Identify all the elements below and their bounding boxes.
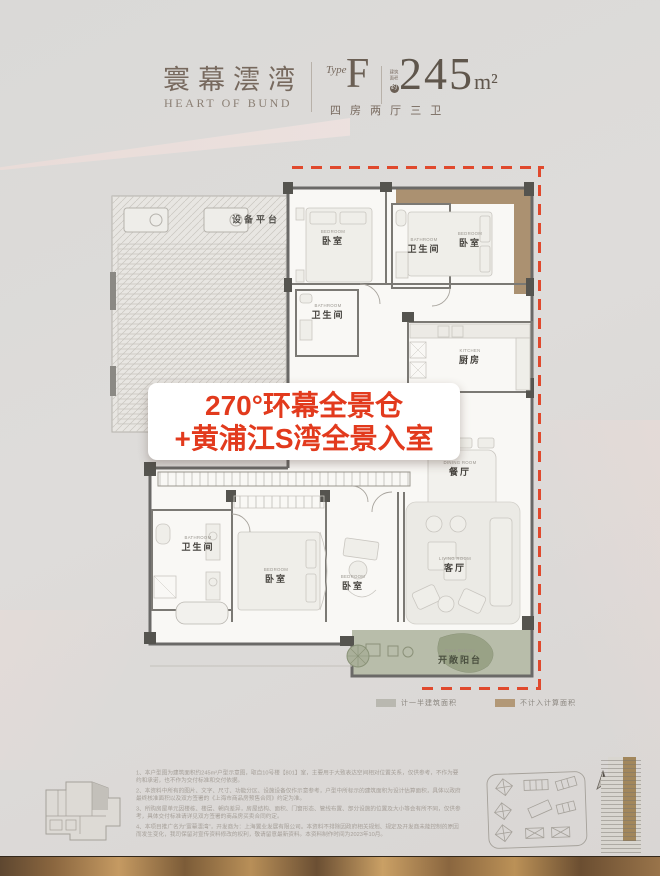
legend-item-not-counted: 不计入计算面积 [495, 698, 576, 708]
floorplan-poster: 寰幕澐湾 HEART OF BUND Type F 建筑 面积 约 245m² … [0, 0, 660, 876]
pink-corner-decoration [530, 420, 660, 770]
legend-item-half-area: 计一半建筑面积 [376, 698, 457, 708]
room-label-bedroom-south: BEDROOM卧室 [336, 574, 370, 592]
room-label-bathroom-mid: BATHROOM卫生间 [309, 303, 346, 321]
callout-banner: 270°环幕全景仓 +黄浦江S湾全景入室 [148, 383, 460, 460]
disclaimer-line: 3、所购房屋单元因楼栋、楼层、朝向差异，房屋结构、面积、门窗形态、管线布置、部分… [136, 806, 461, 821]
area-note-line2: 面积 [390, 77, 399, 81]
building-elevation [601, 757, 641, 853]
gold-footer-bar [0, 856, 660, 876]
disclaimer-line: 1、本户型图为建筑面积约245m²户型示意图，取自10号楼【801】室，主要用于… [136, 770, 461, 785]
dashed-border-top [292, 166, 544, 169]
banner-line2: +黄浦江S湾全景入室 [174, 422, 433, 455]
type-value: F [346, 50, 369, 98]
brand-subtitle: HEART OF BUND [164, 96, 292, 111]
disclaimer-line: 2、本资料中所有的图片、文字、尺寸、功能分区、设施设备仅作示意参考，户型中所标示… [136, 788, 461, 803]
layout-description: 四 房 两 厅 三 卫 [330, 102, 444, 118]
legend: 计一半建筑面积 不计入计算面积 [376, 698, 576, 708]
dashed-border-bottom [422, 687, 540, 690]
approx-badge: 约 [390, 84, 399, 93]
room-label-kitchen: KITCHEN厨房 [455, 348, 484, 366]
site-plan [486, 770, 589, 854]
room-label-bedroom-north: BEDROOM卧室 [316, 229, 350, 247]
header-divider-2 [381, 66, 382, 104]
disclaimer-text: 1、本户型图为建筑面积约245m²户型示意图，取自10号楼【801】室，主要用于… [136, 770, 482, 842]
room-label-dining: DINING ROOM餐厅 [437, 460, 483, 478]
header-divider [311, 62, 312, 112]
type-label: Type [326, 64, 347, 76]
tower-floor-lines [601, 757, 641, 853]
key-plan [36, 772, 128, 857]
room-label-living: LIVING ROOM客厅 [433, 556, 477, 574]
brand-title: 寰幕澐湾 [163, 58, 303, 97]
legend-swatch-brown [495, 699, 515, 707]
dashed-border-right [538, 166, 541, 690]
disclaimer-line: 4、本项目推广名为“寰幕澐湾”，开发商为：上海置业发展有限公司。本资料不排除因政… [136, 824, 461, 839]
room-label-bedroom-master: BEDROOM卧室 [259, 567, 293, 585]
banner-line1: 270°环幕全景仓 [205, 389, 403, 422]
room-label-bathroom-west: BATHROOM卫生间 [179, 535, 216, 553]
room-label-bedroom-ne: BEDROOM卧室 [453, 231, 487, 249]
platform-label: 设备平台 [232, 213, 280, 226]
area-note-line1: 建筑 [390, 71, 399, 75]
wardrobe-band [396, 188, 532, 204]
room-label-bathroom-ne: BATHROOM卫生间 [405, 237, 442, 255]
corridor-closet [158, 472, 410, 486]
room-label-balcony: Open Balcony开敞阳台 [438, 648, 482, 666]
area-value: 245m² [399, 47, 498, 100]
legend-swatch-gray [376, 699, 396, 707]
